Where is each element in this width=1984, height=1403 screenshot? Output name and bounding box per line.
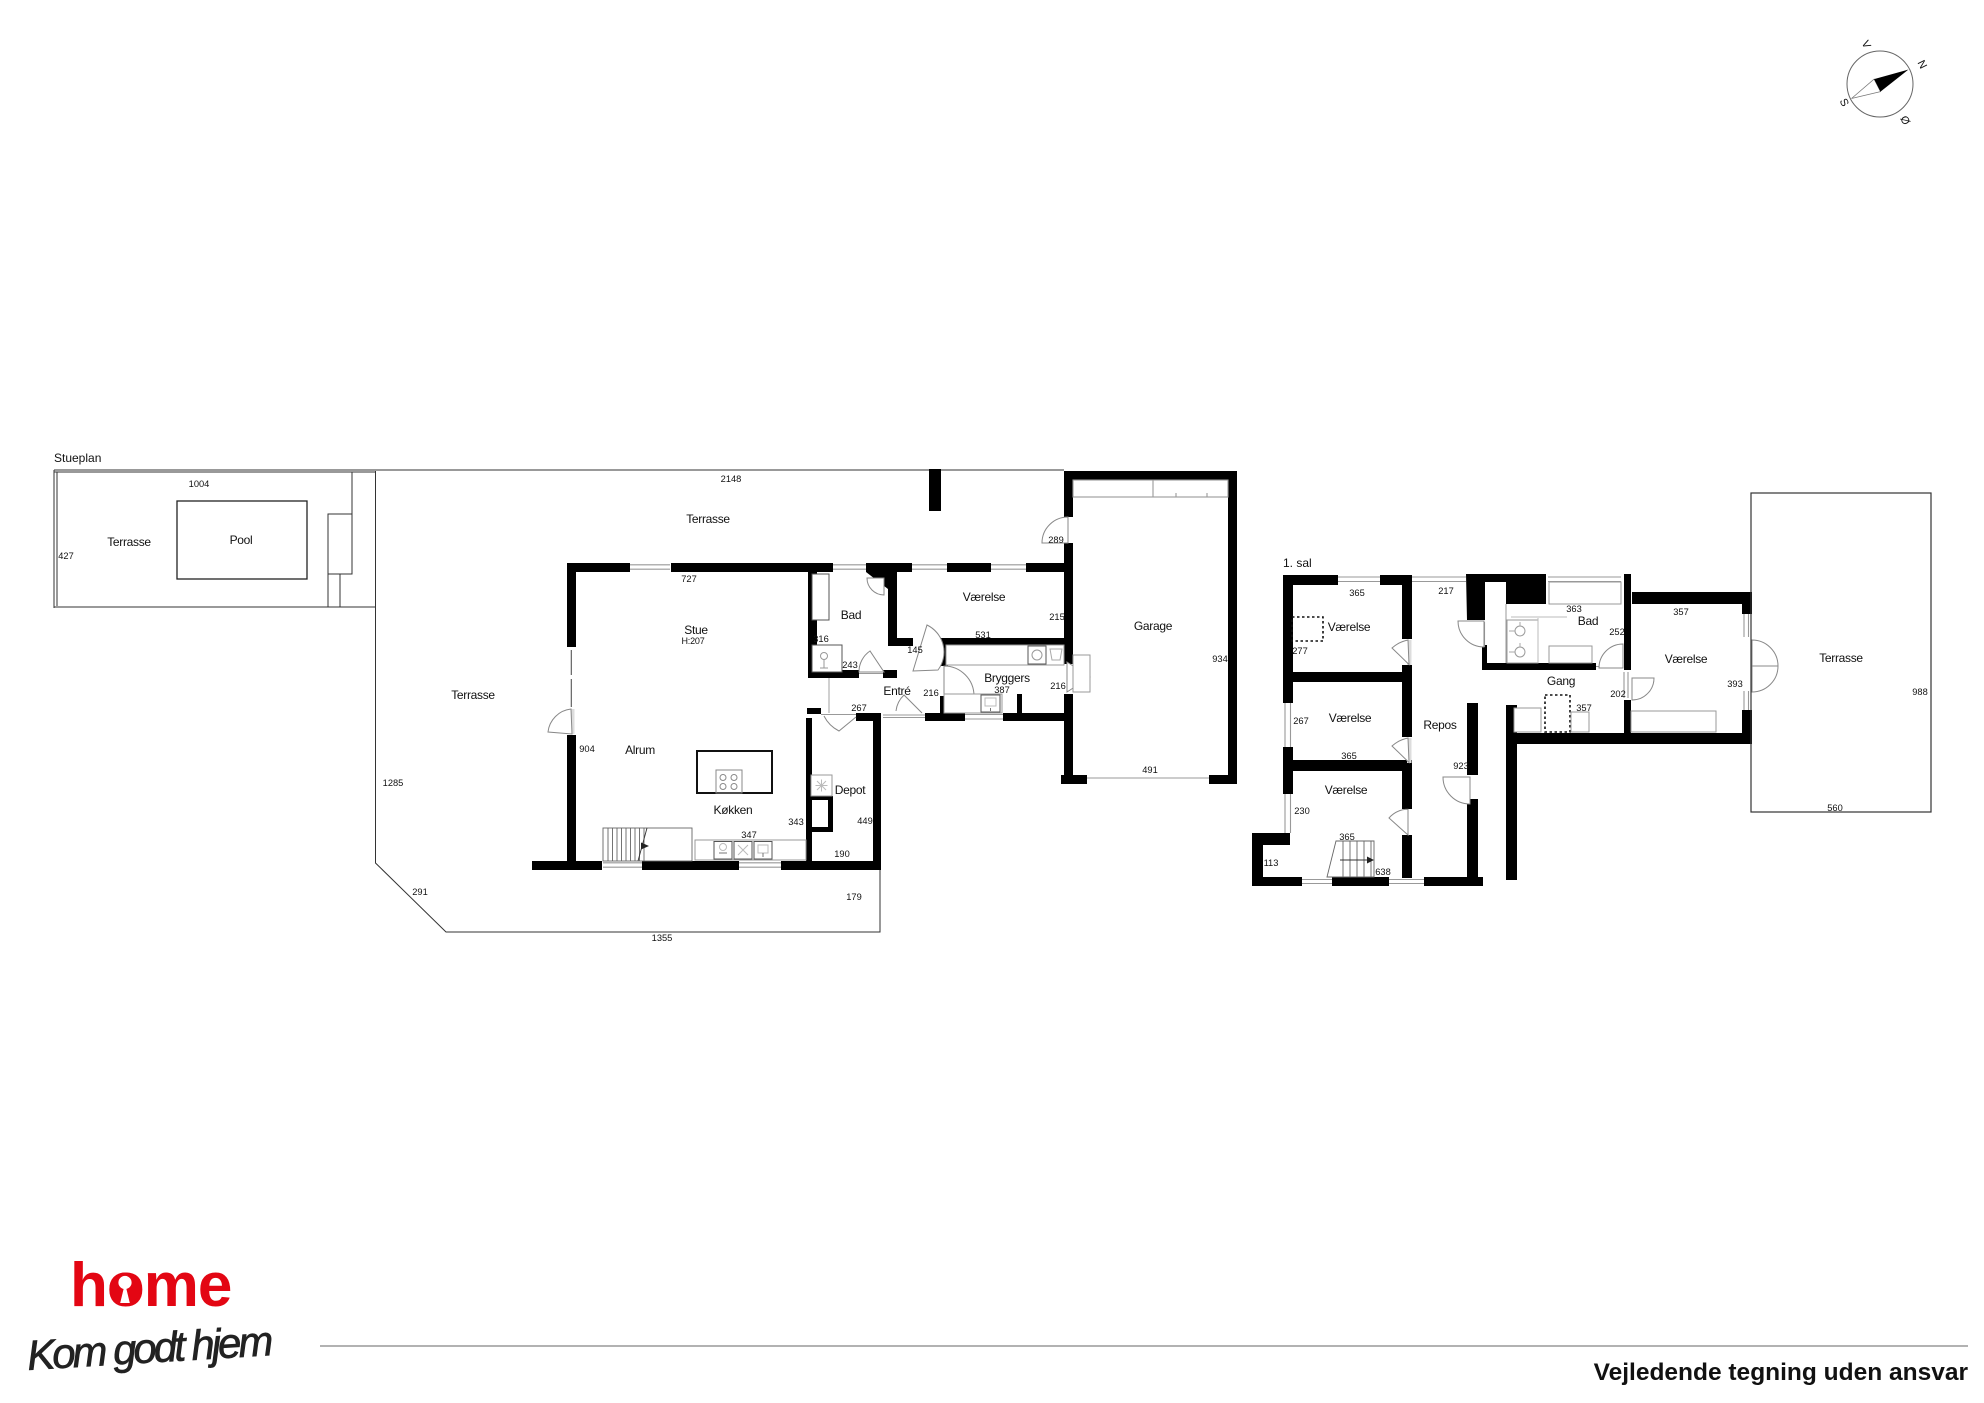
svg-text:531: 531 — [975, 630, 991, 640]
svg-text:923: 923 — [1453, 761, 1469, 771]
svg-text:343: 343 — [788, 817, 804, 827]
svg-text:267: 267 — [1293, 716, 1309, 726]
svg-text:252: 252 — [1609, 627, 1625, 637]
svg-text:267: 267 — [851, 703, 867, 713]
svg-text:387: 387 — [994, 685, 1010, 695]
svg-text:316: 316 — [813, 634, 829, 644]
svg-text:Køkken: Køkken — [714, 803, 753, 817]
svg-text:H:207: H:207 — [681, 636, 704, 646]
svg-text:934: 934 — [1212, 654, 1228, 664]
svg-text:393: 393 — [1727, 679, 1743, 689]
svg-text:243: 243 — [842, 660, 858, 670]
svg-text:113: 113 — [1264, 858, 1279, 868]
svg-text:365: 365 — [1339, 832, 1355, 842]
svg-text:216: 216 — [923, 688, 939, 698]
svg-text:Garage: Garage — [1134, 619, 1173, 633]
svg-text:291: 291 — [412, 887, 428, 897]
svg-text:Vejledende tegning uden ansvar: Vejledende tegning uden ansvar — [1594, 1359, 1969, 1386]
svg-text:365: 365 — [1341, 751, 1357, 761]
svg-text:217: 217 — [1438, 586, 1454, 596]
svg-text:Terrasse: Terrasse — [107, 535, 151, 549]
svg-text:1004: 1004 — [189, 479, 210, 489]
svg-text:215: 215 — [1049, 612, 1065, 622]
svg-text:289: 289 — [1048, 535, 1064, 545]
svg-text:Depot: Depot — [835, 783, 866, 797]
svg-text:449: 449 — [857, 816, 873, 826]
svg-text:1285: 1285 — [383, 778, 404, 788]
svg-text:230: 230 — [1294, 806, 1310, 816]
svg-text:2148: 2148 — [721, 474, 742, 484]
svg-text:560: 560 — [1827, 803, 1843, 813]
svg-text:Pool: Pool — [230, 533, 253, 547]
svg-text:277: 277 — [1292, 646, 1308, 656]
svg-text:904: 904 — [579, 744, 595, 754]
svg-text:home: home — [70, 1251, 231, 1320]
svg-text:363: 363 — [1566, 604, 1582, 614]
svg-text:988: 988 — [1912, 687, 1928, 697]
svg-text:Alrum: Alrum — [625, 743, 655, 757]
svg-text:Gang: Gang — [1547, 674, 1575, 688]
svg-text:Værelse: Værelse — [963, 590, 1006, 604]
svg-text:Terrasse: Terrasse — [451, 688, 495, 702]
svg-text:Stue: Stue — [684, 623, 708, 637]
svg-text:216: 216 — [1050, 681, 1066, 691]
svg-text:Stueplan: Stueplan — [54, 451, 101, 465]
svg-text:347: 347 — [741, 830, 757, 840]
svg-text:1. sal: 1. sal — [1283, 556, 1312, 570]
svg-text:Entré: Entré — [883, 684, 911, 698]
svg-text:357: 357 — [1576, 703, 1592, 713]
svg-text:638: 638 — [1375, 867, 1391, 877]
svg-text:491: 491 — [1142, 765, 1158, 775]
svg-text:365: 365 — [1349, 588, 1365, 598]
svg-text:179: 179 — [846, 892, 862, 902]
svg-text:Bad: Bad — [841, 608, 861, 622]
svg-text:Terrasse: Terrasse — [1819, 651, 1863, 665]
svg-text:Repos: Repos — [1423, 718, 1456, 732]
svg-text:1355: 1355 — [652, 933, 673, 943]
svg-text:357: 357 — [1673, 607, 1689, 617]
svg-text:145: 145 — [907, 645, 923, 655]
svg-text:Bad: Bad — [1578, 614, 1598, 628]
svg-text:202: 202 — [1610, 689, 1626, 699]
svg-text:Værelse: Værelse — [1329, 711, 1372, 725]
svg-text:190: 190 — [834, 849, 850, 859]
svg-text:Terrasse: Terrasse — [686, 512, 730, 526]
svg-text:Bryggers: Bryggers — [984, 671, 1030, 685]
svg-text:427: 427 — [58, 551, 74, 561]
svg-text:Værelse: Værelse — [1328, 620, 1371, 634]
svg-text:Værelse: Værelse — [1665, 652, 1708, 666]
svg-text:Værelse: Værelse — [1325, 783, 1368, 797]
svg-text:727: 727 — [681, 574, 697, 584]
